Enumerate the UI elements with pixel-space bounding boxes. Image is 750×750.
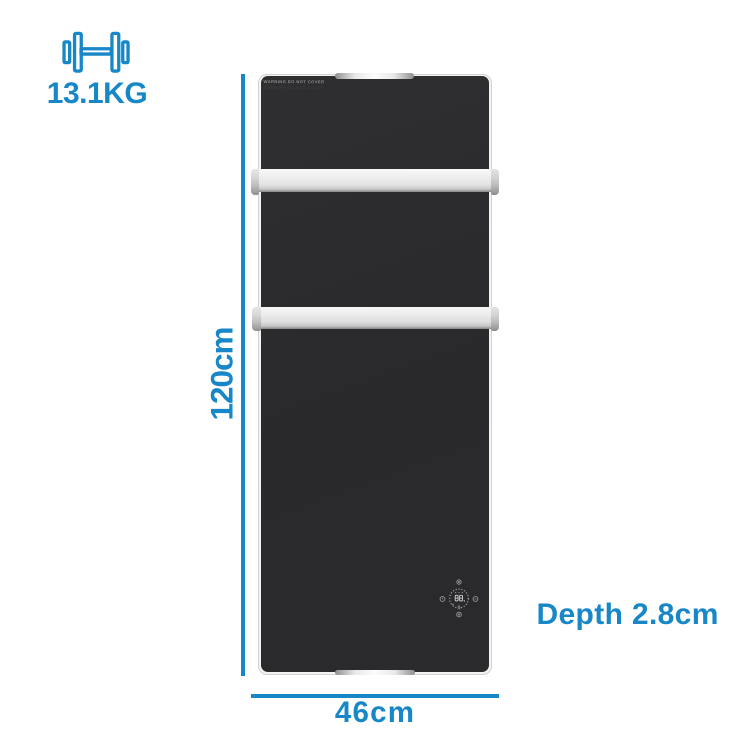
svg-text:WARNING DO NOT COVER: WARNING DO NOT COVER [263,85,324,90]
svg-text:WARNING DO NOT COVER: WARNING DO NOT COVER [264,79,325,84]
